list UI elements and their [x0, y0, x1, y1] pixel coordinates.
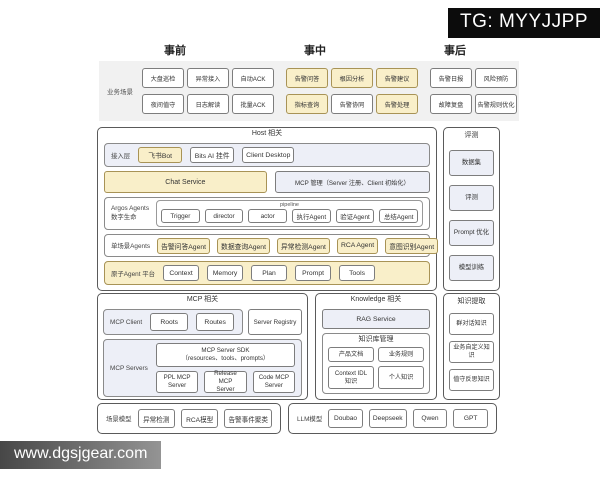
argos-agents-label: Argos Agents 数字生命 — [111, 205, 149, 222]
extraction-box: 值守反思知识 — [449, 369, 494, 391]
business-scenarios-label: 业务场景 — [103, 86, 137, 96]
atomic-agent-platform-band: 原子Agent 平台 ContextMemoryPlanPromptTools — [104, 261, 430, 285]
mcp-server-box: PPL MCP Server — [156, 371, 198, 393]
knowledge-extraction-section: 知识提取 群对话知识业务自定义知识值守反思知识 — [443, 293, 500, 400]
knowledge-extraction-title: 知识提取 — [449, 296, 494, 307]
access-client-box: Client Desktop — [242, 147, 294, 163]
scenario-box: 批量ACK — [232, 94, 274, 114]
mcp-client-band: MCP Client RootsRoutes — [103, 309, 243, 335]
scenario-box: 异常接入 — [187, 68, 229, 88]
knowledge-box: Context IDL 知识 — [328, 366, 374, 389]
evaluation-box: 数据集 — [449, 150, 494, 176]
phase-header-mid: 事中 — [293, 42, 337, 58]
atomic-capability-box: Plan — [251, 265, 287, 281]
llm-model-box: Doubao — [328, 409, 363, 428]
service-row: Chat Service MCP 管理（Server 注册、Client 初始化… — [104, 171, 430, 193]
evaluation-items: 数据集评测Prompt 优化模型训练 — [449, 141, 494, 281]
argos-agents-band: Argos Agents 数字生命 pipeline Triggerdirect… — [104, 197, 430, 230]
knowledge-box: 业务规则 — [378, 347, 424, 362]
scene-model-box: 异常检测 — [138, 409, 175, 428]
extraction-box: 业务自定义知识 — [449, 341, 494, 363]
access-layer-band: 接入层 飞书BotBits AI 挂件Client Desktop — [104, 143, 430, 167]
mcp-server-row: PPL MCP ServerRelease MCP ServerCode MCP… — [156, 371, 295, 393]
scene-models-label: 场景模型 — [106, 414, 132, 423]
watermark-website: www.dgsjgear.com — [0, 441, 161, 469]
evaluation-box: 评测 — [449, 185, 494, 211]
host-section: Host 相关 接入层 飞书BotBits AI 挂件Client Deskto… — [97, 127, 437, 291]
pipeline-agent-box: 总结Agent — [379, 209, 418, 223]
pipeline-agent-box: director — [205, 209, 244, 223]
mcp-client-box: Routes — [196, 313, 234, 331]
knowledge-base-grid: 产品文档业务规则Context IDL 知识个人知识 — [328, 347, 424, 389]
llm-model-box: GPT — [453, 409, 488, 428]
access-client-box: 飞书Bot — [138, 147, 182, 163]
knowledge-base-title: 知识库管理 — [328, 334, 424, 345]
knowledge-box: 产品文档 — [328, 347, 374, 362]
phase-header-post: 事后 — [433, 42, 477, 58]
mcp-server-sdk-title: MCP Server SDK — [201, 347, 249, 355]
evaluation-box: Prompt 优化 — [449, 220, 494, 246]
knowledge-base-box: 知识库管理 产品文档业务规则Context IDL 知识个人知识 — [322, 333, 430, 394]
evaluation-box: 模型训练 — [449, 255, 494, 281]
scene-model-box: RCA模型 — [181, 409, 218, 428]
scene-agent-box: 数据查询Agent — [217, 238, 270, 254]
extraction-box: 群对话知识 — [449, 313, 494, 335]
mcp-server-sdk-box: MCP Server SDK （resources、tools、prompts） — [156, 343, 295, 367]
mcp-section: MCP 相关 MCP Client RootsRoutes Server Reg… — [97, 293, 308, 400]
scenario-row-1: 大盘巡检异常接入自动ACK告警问答根因分析告警建议告警日报风险预防 — [142, 68, 517, 88]
llm-model-box: Qwen — [413, 409, 448, 428]
scenario-box: 大盘巡检 — [142, 68, 184, 88]
scene-agent-box: 意图识别Agent — [385, 238, 438, 254]
mcp-server-box: Release MCP Server — [204, 371, 246, 393]
server-registry-box: Server Registry — [248, 309, 302, 335]
scenario-box: 日志解读 — [187, 94, 229, 114]
scenario-box: 指标查询 — [286, 94, 328, 114]
pipeline-box: pipeline Triggerdirectoractor执行Agent验证Ag… — [156, 200, 423, 227]
atomic-capability-box: Tools — [339, 265, 375, 281]
pipeline-agent-box: 验证Agent — [336, 209, 375, 223]
knowledge-extraction-items: 群对话知识业务自定义知识值守反思知识 — [449, 307, 494, 391]
scenario-row-2: 夜间值守日志解读批量ACK指标查询告警协同告警处理故障复盘告警规则优化 — [142, 94, 517, 114]
single-scene-agents-label: 单场景Agents — [111, 241, 150, 250]
scene-agent-box: 告警问答Agent — [157, 238, 210, 254]
mcp-management-box: MCP 管理（Server 注册、Client 初始化） — [275, 171, 430, 193]
scenario-grid: 大盘巡检异常接入自动ACK告警问答根因分析告警建议告警日报风险预防 夜间值守日志… — [142, 68, 517, 114]
mcp-client-row: MCP Client RootsRoutes Server Registry — [103, 309, 302, 335]
phase-header-pre: 事前 — [153, 42, 197, 58]
pipeline-row: Triggerdirectoractor执行Agent验证Agent总结Agen… — [161, 209, 418, 223]
scenario-box: 告警日报 — [430, 68, 472, 88]
host-section-title: Host 相关 — [104, 128, 430, 139]
scenario-box: 根因分析 — [331, 68, 373, 88]
scene-agent-box: 异常检测Agent — [277, 238, 330, 254]
business-scenarios-band: 业务场景 大盘巡检异常接入自动ACK告警问答根因分析告警建议告警日报风险预防 夜… — [99, 61, 519, 121]
mcp-servers-column: MCP Server SDK （resources、tools、prompts）… — [156, 343, 295, 393]
llm-models-section: LLM模型 DoubaoDeepseekQwenGPT — [288, 403, 497, 434]
scenario-box: 告警建议 — [376, 68, 418, 88]
atomic-agent-platform-label: 原子Agent 平台 — [111, 269, 155, 278]
knowledge-box: 个人知识 — [378, 366, 424, 389]
atomic-capability-box: Memory — [207, 265, 243, 281]
chat-service-box: Chat Service — [104, 171, 267, 193]
mcp-server-sdk-subtitle: （resources、tools、prompts） — [182, 355, 269, 363]
atomic-capability-box: Context — [163, 265, 199, 281]
pipeline-label: pipeline — [161, 202, 418, 209]
evaluation-section-title: 评测 — [449, 130, 494, 141]
scene-agent-box: RCA Agent — [337, 238, 378, 254]
scene-model-box: 告警事件聚类 — [224, 409, 272, 428]
single-scene-agents-band: 单场景Agents 告警问答Agent数据查询Agent异常检测AgentRCA… — [104, 234, 430, 257]
watermark-telegram: TG: MYYJJPP — [448, 8, 600, 38]
knowledge-section-title: Knowledge 相关 — [322, 294, 430, 305]
scenario-box: 自动ACK — [232, 68, 274, 88]
scenario-box: 夜间值守 — [142, 94, 184, 114]
llm-models-label: LLM模型 — [297, 414, 322, 423]
scenario-box: 告警处理 — [376, 94, 418, 114]
atomic-capability-box: Prompt — [295, 265, 331, 281]
llm-model-box: Deepseek — [369, 409, 407, 428]
mcp-server-box: Code MCP Server — [253, 371, 295, 393]
scenario-box: 告警规则优化 — [475, 94, 517, 114]
mcp-servers-label: MCP Servers — [110, 365, 148, 372]
access-layer-label: 接入层 — [111, 151, 130, 160]
scene-models-section: 场景模型 异常检测RCA模型告警事件聚类 — [97, 403, 281, 434]
scenario-box: 告警问答 — [286, 68, 328, 88]
knowledge-section: Knowledge 相关 RAG Service 知识库管理 产品文档业务规则C… — [315, 293, 437, 400]
scenario-box: 风险预防 — [475, 68, 517, 88]
scenario-box: 告警协同 — [331, 94, 373, 114]
mcp-section-title: MCP 相关 — [103, 294, 302, 305]
pipeline-agent-box: 执行Agent — [292, 209, 331, 223]
access-client-box: Bits AI 挂件 — [190, 147, 234, 163]
rag-service-box: RAG Service — [322, 309, 430, 329]
mcp-client-box: Roots — [150, 313, 188, 331]
pipeline-agent-box: actor — [248, 209, 287, 223]
pipeline-agent-box: Trigger — [161, 209, 200, 223]
evaluation-section: 评测 数据集评测Prompt 优化模型训练 — [443, 127, 500, 291]
mcp-client-label: MCP Client — [110, 319, 142, 326]
mcp-servers-band: MCP Servers MCP Server SDK （resources、to… — [103, 339, 302, 397]
scenario-box: 故障复盘 — [430, 94, 472, 114]
